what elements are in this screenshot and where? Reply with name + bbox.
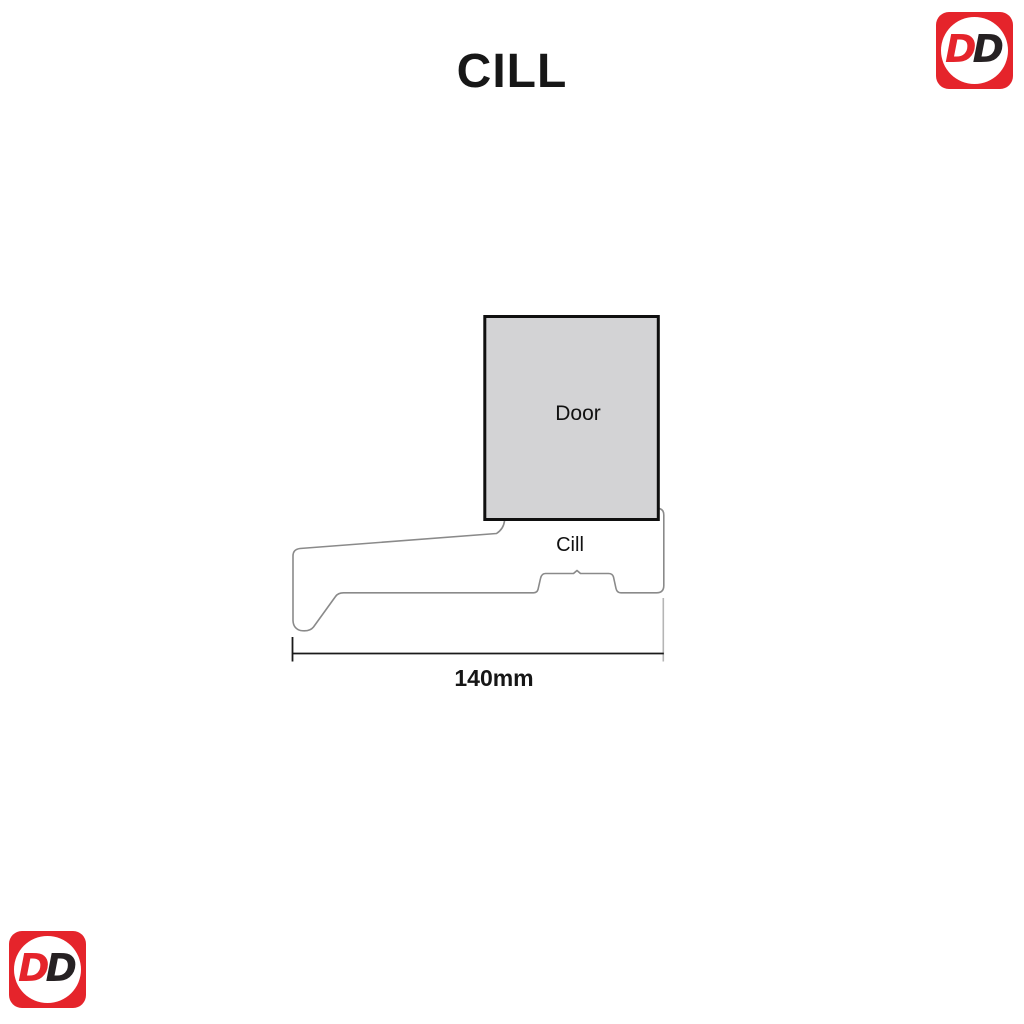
cill-profile-outline xyxy=(293,508,664,631)
cill-label: Cill xyxy=(530,534,610,557)
page-root: { "page": { "background_color": "#ffffff… xyxy=(0,0,1024,1024)
dimension-label: 140mm xyxy=(434,665,554,692)
door-label: Door xyxy=(538,402,618,426)
cill-cross-section-diagram xyxy=(0,0,1024,1024)
